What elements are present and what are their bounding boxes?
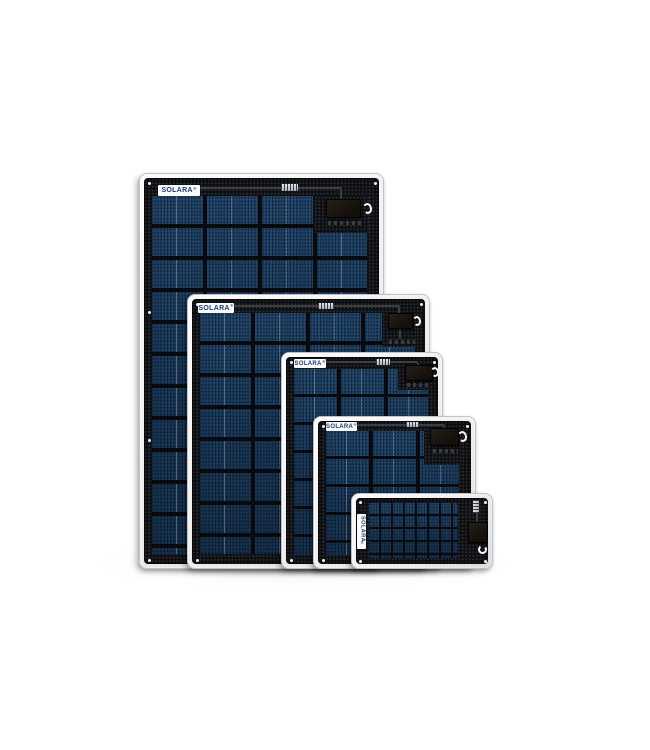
- cable-trace: [234, 305, 400, 307]
- mounting-holes: [148, 182, 151, 185]
- junction-box: [468, 522, 488, 543]
- panel-surface: SOLARA®: [356, 498, 488, 564]
- junction-box: [388, 313, 413, 329]
- solar-cells: [369, 503, 458, 558]
- brand-logo-text: SOLARA: [198, 305, 229, 312]
- registered-mark: ®: [193, 187, 196, 191]
- brand-logo-text: SOLARA: [161, 187, 192, 194]
- brand-logo: SOLARA®: [357, 514, 366, 549]
- brand-logo: SOLARA®: [326, 422, 357, 431]
- junction-box: [430, 428, 459, 446]
- brand-logo: SOLARA®: [294, 359, 326, 368]
- barcode-sticker: [318, 303, 334, 309]
- cable-clamp: [433, 449, 458, 453]
- junction-box: [326, 199, 361, 218]
- barcode-sticker: [473, 500, 479, 513]
- brand-logo: SOLARA®: [158, 185, 200, 196]
- cable-trace: [200, 187, 342, 189]
- mounting-holes: [196, 303, 199, 306]
- cable-trace: [399, 329, 401, 339]
- registered-mark: ®: [360, 540, 364, 546]
- brand-logo-text: SOLARA: [326, 424, 353, 430]
- cable-loop-icon: [477, 544, 487, 554]
- mounting-holes: [290, 361, 293, 364]
- cable-clamp: [328, 221, 364, 225]
- registered-mark: ®: [354, 423, 357, 427]
- cable-clamp: [407, 383, 431, 387]
- cable-trace: [476, 513, 478, 522]
- barcode-sticker: [376, 359, 390, 365]
- cable-trace: [326, 361, 418, 363]
- registered-mark: ®: [322, 360, 325, 364]
- brand-logo: SOLARA®: [198, 303, 234, 313]
- solar-panel-smallest: SOLARA®: [351, 493, 493, 569]
- cable-trace: [357, 424, 445, 426]
- brand-logo-text: SOLARA: [359, 516, 365, 542]
- registered-mark: ®: [230, 304, 233, 308]
- brand-logo-text: SOLARA: [295, 361, 322, 367]
- mounting-holes: [359, 501, 362, 504]
- product-image: SOLARA® SOLARA®: [0, 0, 650, 750]
- barcode-sticker: [406, 422, 419, 427]
- mounting-holes: [322, 425, 325, 428]
- cable-clamp: [389, 340, 415, 344]
- junction-box: [405, 365, 433, 381]
- barcode-sticker: [281, 184, 298, 191]
